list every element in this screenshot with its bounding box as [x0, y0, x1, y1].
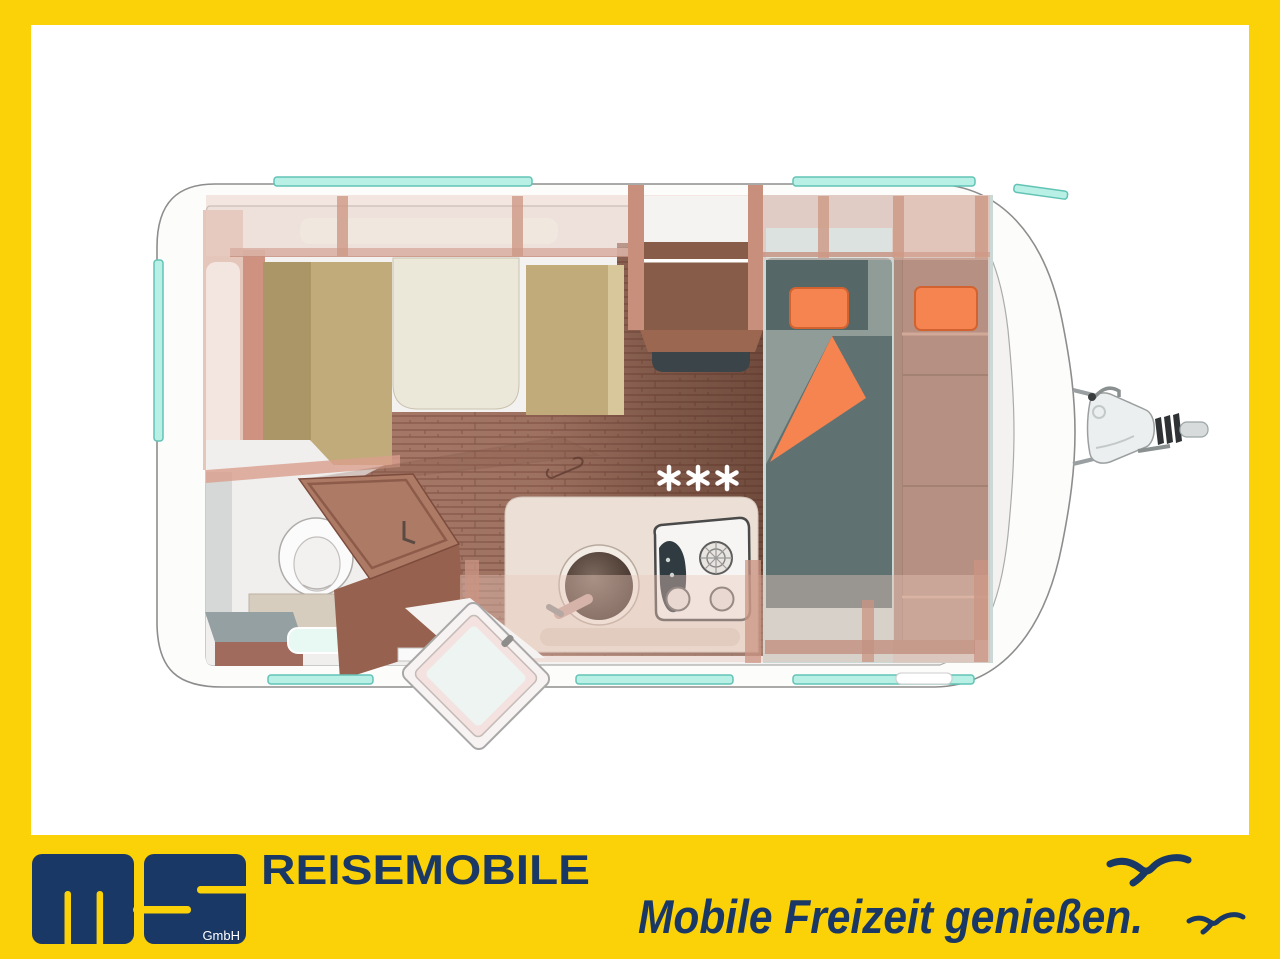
svg-text:GmbH: GmbH — [202, 928, 240, 943]
svg-text:Mobile Freizeit genießen.: Mobile Freizeit genießen. — [638, 890, 1143, 943]
svg-text:REISEMOBILE: REISEMOBILE — [261, 846, 590, 893]
